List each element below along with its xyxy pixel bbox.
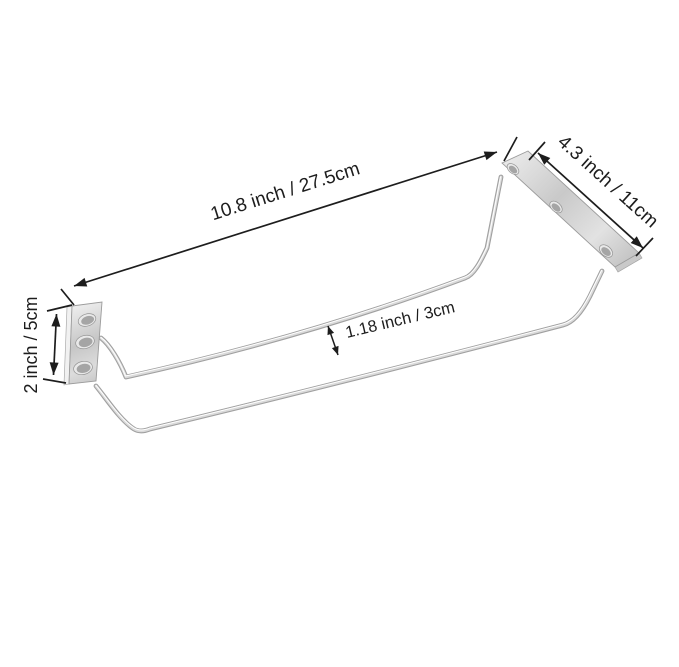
witness-tick (43, 379, 66, 383)
lower-rail-wire (96, 271, 602, 431)
dimension-line (54, 314, 57, 375)
witness-tick (61, 289, 74, 305)
right-mounting-bracket (502, 151, 642, 272)
dimension-rail-gap (328, 326, 338, 355)
upper-rail-wire (101, 177, 501, 377)
wine-rack-dimension-diagram: 10.8 inch / 27.5cm 4.3 inch / 11cm 2 inc… (0, 0, 679, 667)
product-image: 10.8 inch / 27.5cm 4.3 inch / 11cm 2 inc… (0, 0, 679, 667)
dimension-line (74, 152, 497, 286)
right-plate-face (502, 151, 639, 267)
wine-rack (64, 151, 642, 431)
witness-tick (636, 238, 653, 256)
dimension-overall-length (61, 137, 517, 305)
rail-gap-label: 1.18 inch / 3cm (344, 298, 457, 342)
dimension-line (328, 326, 338, 355)
left-mounting-bracket (64, 302, 102, 385)
bracket-height-label: 2 inch / 5cm (21, 296, 41, 393)
overall-length-label: 10.8 inch / 27.5cm (208, 158, 362, 225)
